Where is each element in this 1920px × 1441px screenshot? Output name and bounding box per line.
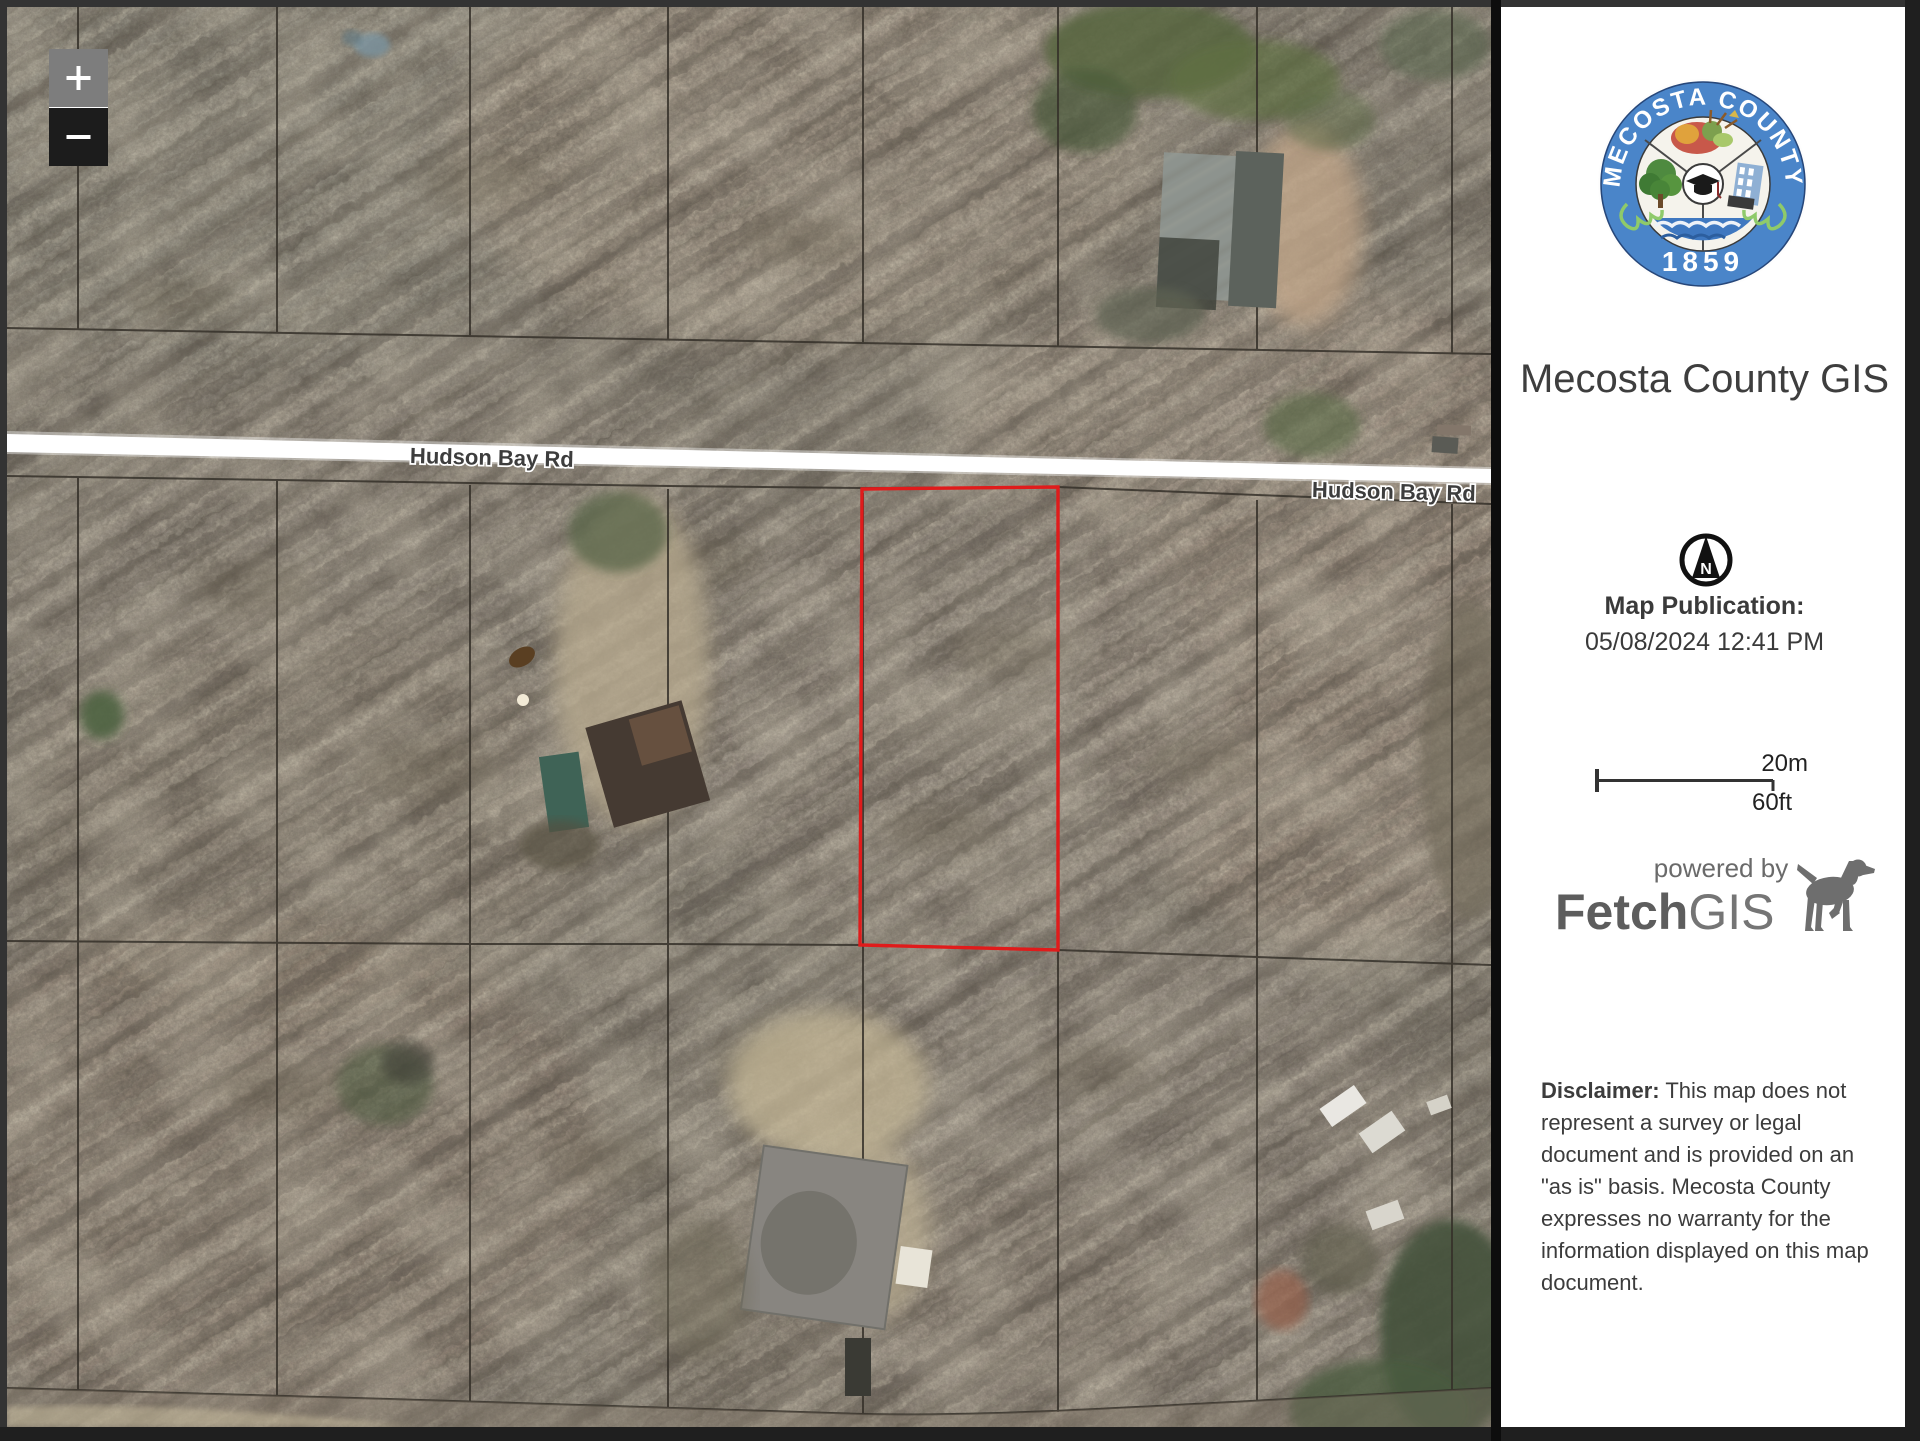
- svg-text:20m: 20m: [1761, 750, 1808, 777]
- svg-text:N: N: [1700, 561, 1712, 578]
- svg-text:60ft: 60ft: [1752, 789, 1792, 816]
- svg-text:Hudson Bay Rd: Hudson Bay Rd: [1312, 477, 1476, 506]
- svg-text:Hudson Bay Rd: Hudson Bay Rd: [410, 443, 574, 472]
